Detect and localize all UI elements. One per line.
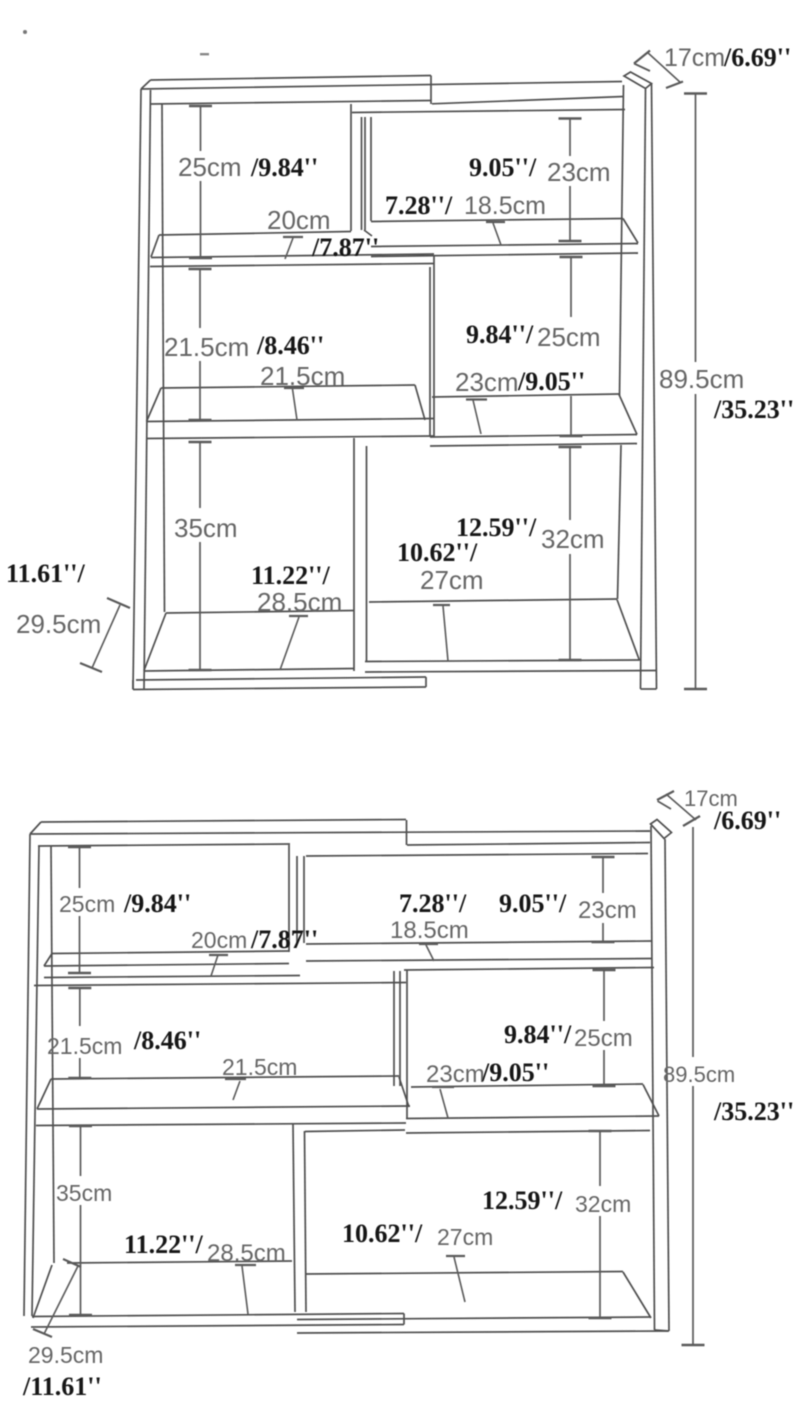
svg-text:/35.23'': /35.23'' <box>713 1097 794 1126</box>
svg-text:32cm: 32cm <box>541 524 605 554</box>
svg-text:/11.61'': /11.61'' <box>22 1372 102 1401</box>
svg-text:12.59''/: 12.59''/ <box>482 1186 563 1215</box>
svg-text:/8.46'': /8.46'' <box>256 331 324 360</box>
svg-text:11.22''/: 11.22''/ <box>251 561 331 590</box>
svg-text:7.28''/: 7.28''/ <box>399 889 467 918</box>
svg-text:21.5cm: 21.5cm <box>222 1054 297 1080</box>
svg-text:10.62''/: 10.62''/ <box>342 1219 423 1248</box>
svg-text:27cm: 27cm <box>420 565 484 595</box>
svg-text:/35.23'': /35.23'' <box>713 395 794 424</box>
svg-text:35cm: 35cm <box>174 513 238 543</box>
svg-text:21.5cm: 21.5cm <box>47 1033 122 1059</box>
svg-text:20cm: 20cm <box>267 205 331 235</box>
svg-text:28.5cm: 28.5cm <box>207 1240 286 1267</box>
svg-text:/6.69'': /6.69'' <box>713 806 781 835</box>
svg-text:9.05''/: 9.05''/ <box>469 153 537 182</box>
svg-text:/9.05'': /9.05'' <box>481 1058 549 1087</box>
svg-text:18.5cm: 18.5cm <box>464 192 546 220</box>
svg-text:/7.87'': /7.87'' <box>250 925 318 954</box>
svg-text:25cm: 25cm <box>59 891 115 917</box>
svg-text:20cm: 20cm <box>191 927 247 953</box>
svg-text:25cm: 25cm <box>537 322 601 352</box>
svg-text:10.62''/: 10.62''/ <box>397 538 478 567</box>
svg-text:21.5cm: 21.5cm <box>164 332 249 362</box>
svg-text:11.22''/: 11.22''/ <box>124 1230 204 1259</box>
svg-text:29.5cm: 29.5cm <box>16 609 101 639</box>
svg-text:11.61''/: 11.61''/ <box>6 559 86 588</box>
svg-text:/9.84'': /9.84'' <box>123 889 191 918</box>
svg-text:9.84''/: 9.84''/ <box>504 1020 572 1049</box>
svg-text:35cm: 35cm <box>56 1180 112 1206</box>
svg-text:23cm: 23cm <box>578 897 637 924</box>
svg-text:21.5cm: 21.5cm <box>260 361 345 391</box>
svg-text:25cm: 25cm <box>574 1025 633 1052</box>
svg-text:23cm: 23cm <box>426 1061 485 1088</box>
svg-text:/8.46'': /8.46'' <box>133 1026 201 1055</box>
svg-text:29.5cm: 29.5cm <box>28 1342 103 1368</box>
svg-text:32cm: 32cm <box>575 1191 631 1217</box>
svg-text:23cm: 23cm <box>455 367 519 397</box>
svg-text:18.5cm: 18.5cm <box>390 917 469 944</box>
svg-text:23cm: 23cm <box>547 157 611 187</box>
svg-text:9.84''/: 9.84''/ <box>466 320 534 349</box>
svg-text:28.5cm: 28.5cm <box>257 587 342 617</box>
svg-text:89.5cm: 89.5cm <box>659 364 744 394</box>
svg-text:25cm: 25cm <box>178 152 242 182</box>
svg-text:17cm: 17cm <box>664 44 725 72</box>
svg-text:/9.05'': /9.05'' <box>517 367 585 396</box>
svg-text:/9.84'': /9.84'' <box>250 153 318 182</box>
svg-text:7.28''/: 7.28''/ <box>385 191 453 220</box>
svg-text:/7.87'': /7.87'' <box>311 233 379 262</box>
svg-text:89.5cm: 89.5cm <box>663 1062 735 1087</box>
svg-text:/6.69'': /6.69'' <box>723 43 791 72</box>
svg-text:27cm: 27cm <box>437 1224 493 1250</box>
svg-text:9.05''/: 9.05''/ <box>499 889 567 918</box>
